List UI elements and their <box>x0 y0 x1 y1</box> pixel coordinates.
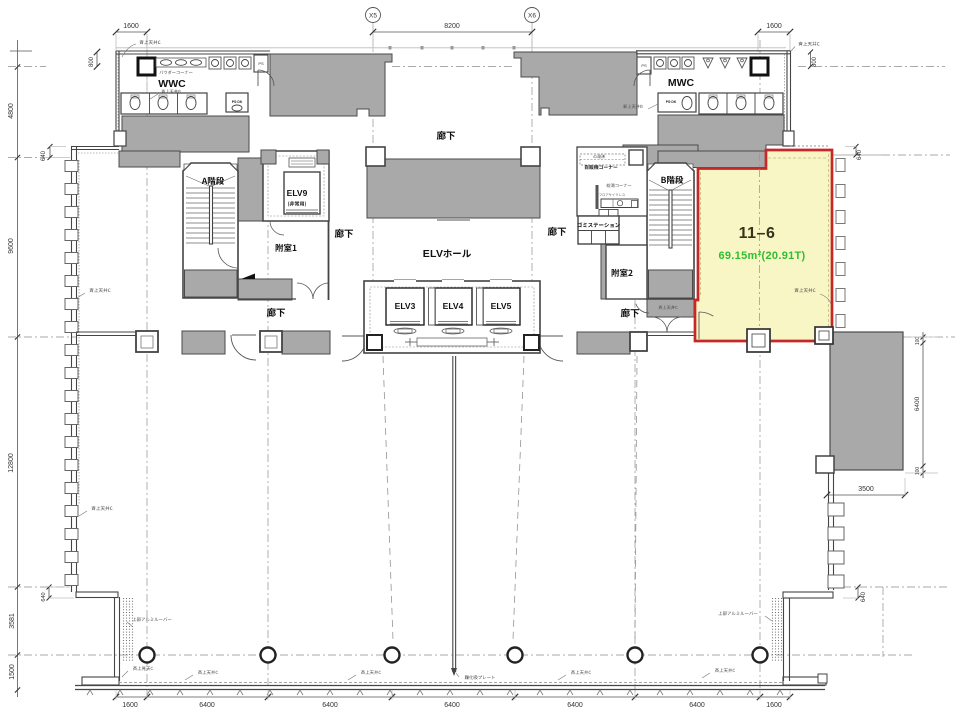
svg-text:ELV: ELV <box>423 248 444 260</box>
svg-text:ELV3: ELV3 <box>395 301 416 311</box>
svg-text:800: 800 <box>812 56 818 67</box>
svg-text:1600: 1600 <box>766 702 782 709</box>
svg-text:640: 640 <box>41 150 47 161</box>
svg-text:11–6: 11–6 <box>739 225 776 242</box>
svg-text:6400: 6400 <box>199 702 215 709</box>
svg-text:100: 100 <box>915 467 921 476</box>
svg-text:WWC: WWC <box>158 78 186 90</box>
svg-text:ELV5: ELV5 <box>491 301 512 311</box>
svg-text:3581: 3581 <box>9 613 16 629</box>
svg-text:8200: 8200 <box>444 23 460 30</box>
svg-text:6400: 6400 <box>914 396 921 411</box>
svg-text:PS: PS <box>641 63 647 68</box>
svg-text:PS·DK: PS·DK <box>666 100 677 104</box>
svg-text:640: 640 <box>861 591 867 602</box>
svg-text:6400: 6400 <box>689 702 705 709</box>
svg-text:MWC: MWC <box>668 77 695 89</box>
svg-text:12800: 12800 <box>8 453 15 473</box>
svg-text:ELV4: ELV4 <box>443 301 464 311</box>
svg-text:6400: 6400 <box>322 702 338 709</box>
svg-text:9600: 9600 <box>8 238 15 254</box>
svg-text:X5: X5 <box>369 13 377 20</box>
svg-text:1600: 1600 <box>766 23 782 30</box>
svg-text:6400: 6400 <box>444 702 460 709</box>
svg-text:3500: 3500 <box>858 486 874 493</box>
svg-text:6400: 6400 <box>567 702 583 709</box>
svg-text:PS·DK: PS·DK <box>232 100 243 104</box>
svg-text:X6: X6 <box>528 13 536 20</box>
svg-text:4800: 4800 <box>8 103 15 119</box>
svg-text:1500: 1500 <box>9 664 16 680</box>
svg-text:640: 640 <box>41 592 47 601</box>
svg-text:69.15m²(20.91T): 69.15m²(20.91T) <box>718 250 805 262</box>
svg-text:PS: PS <box>258 61 264 66</box>
svg-text:800: 800 <box>89 56 95 67</box>
svg-text:100: 100 <box>915 337 921 346</box>
svg-text:1600: 1600 <box>123 23 139 30</box>
svg-text:1600: 1600 <box>122 702 138 709</box>
svg-text:640: 640 <box>857 149 863 160</box>
svg-text:ELV9: ELV9 <box>287 188 308 198</box>
